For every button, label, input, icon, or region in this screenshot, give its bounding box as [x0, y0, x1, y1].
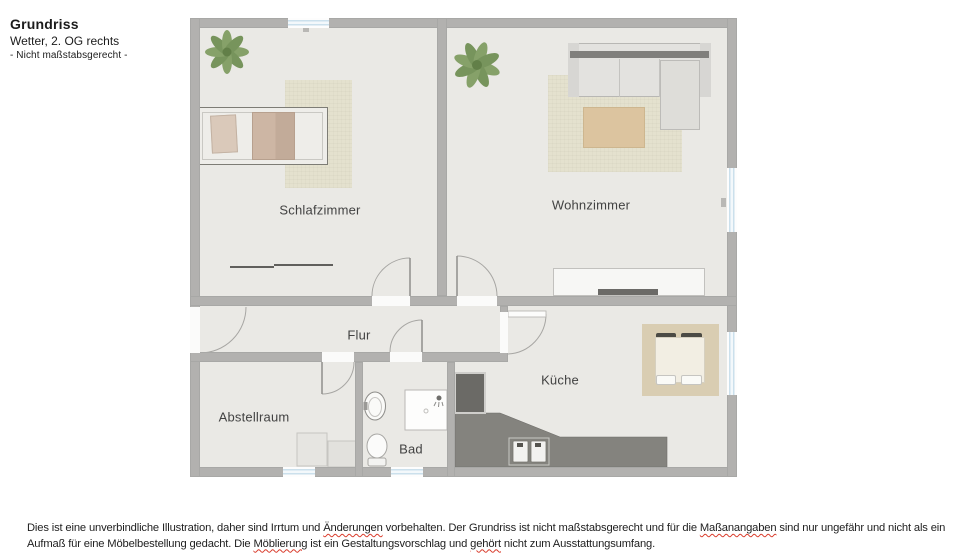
room-label-abstellraum: Abstellraum: [219, 410, 290, 425]
room-label-bad: Bad: [399, 442, 423, 457]
window-handle: [721, 198, 726, 207]
misspelled-word: Änderungen: [323, 522, 382, 534]
shower-icon: [405, 390, 447, 430]
window-bedroom: [288, 18, 329, 28]
wall-outer-bottom: [190, 467, 737, 477]
storage-door-opening: [322, 352, 354, 362]
page-subtitle: Wetter, 2. OG rechts: [10, 34, 128, 48]
footer-line-2: Aufmaß für eine Möbelbestellung gedacht.…: [27, 537, 957, 553]
footer-line-1: Dies ist eine unverbindliche Illustratio…: [27, 521, 957, 537]
footer-text: vorbehalten. Der Grundriss ist nicht maß…: [383, 522, 700, 534]
footer-text: nicht zum Ausstattungsumfang.: [501, 538, 655, 550]
room-label-flur: Flur: [347, 328, 370, 343]
misspelled-word: gehört: [470, 538, 501, 550]
kitchen-appliance-icon: [455, 373, 485, 413]
wall-bedroom-living: [437, 18, 447, 296]
wall-bath-kitchen: [447, 362, 455, 477]
room-label-wohnzimmer: Wohnzimmer: [552, 198, 630, 213]
wall-outer-top: [190, 18, 737, 28]
window-storage: [283, 467, 315, 477]
wall-outer-left: [190, 18, 200, 477]
misspelled-word: Maßanangaben: [700, 522, 777, 534]
window-livingroom: [727, 168, 737, 232]
livingroom-door-opening: [457, 296, 497, 306]
kitchen-door-opening: [500, 312, 508, 353]
storage-boxes: [297, 433, 356, 467]
footer-text: Aufmaß für eine Möbelbestellung gedacht.…: [27, 538, 253, 550]
misspelled-word: Möblierung: [253, 538, 307, 550]
door-swings: [200, 256, 546, 394]
bedroom-door-opening: [372, 296, 410, 306]
floorplan: Schlafzimmer Wohnzimmer Flur Abstellraum…: [190, 18, 737, 477]
footer-text: ist ein Gestaltungsvorschlag und: [307, 538, 470, 550]
scale-note: - Nicht maßstabsgerecht -: [10, 50, 128, 61]
bedroom-sideboard: [230, 265, 333, 267]
window-bathroom: [391, 467, 423, 477]
floorplan-page: Grundriss Wetter, 2. OG rechts - Nicht m…: [0, 0, 960, 560]
window-kitchen: [727, 332, 737, 395]
footer-text: Dies ist eine unverbindliche Illustratio…: [27, 522, 323, 534]
wall-outer-right: [727, 18, 737, 477]
disclaimer: Dies ist eine unverbindliche Illustratio…: [27, 521, 957, 552]
footer-text: sind nur ungefähr und nicht als ein: [776, 522, 945, 534]
window-handle: [303, 28, 309, 32]
room-label-schlafzimmer: Schlafzimmer: [279, 203, 360, 218]
entry-door-swing: [200, 307, 246, 353]
toilet-icon: [367, 434, 387, 466]
bathroom-door-opening: [390, 352, 422, 362]
wall-storage-bath: [355, 362, 363, 477]
plant-icon: [205, 30, 249, 74]
plant-icon: [453, 41, 502, 90]
entry-door-opening: [190, 307, 200, 353]
bathroom-sink-icon: [364, 392, 386, 420]
room-label-kueche: Küche: [541, 373, 579, 388]
title-block: Grundriss Wetter, 2. OG rechts - Nicht m…: [10, 16, 128, 61]
plan-overlay: [190, 18, 737, 477]
page-title: Grundriss: [10, 16, 128, 32]
